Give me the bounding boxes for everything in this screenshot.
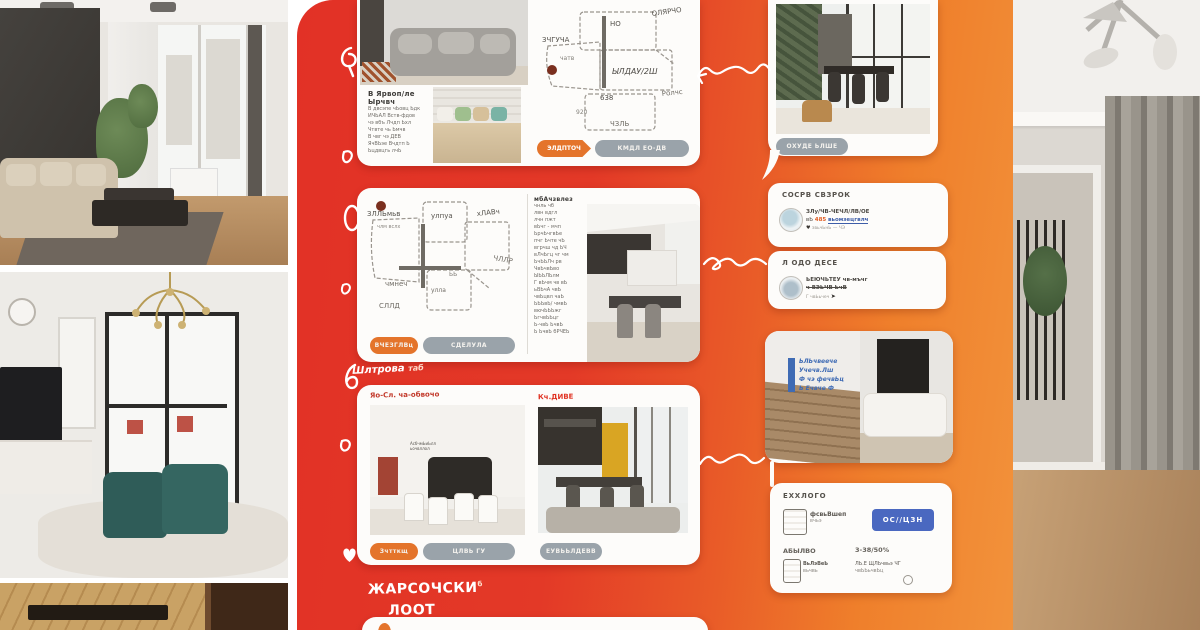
shelf [544, 419, 596, 427]
floor [776, 108, 930, 134]
info-card-1-amount: 485 [815, 217, 826, 223]
summary-row1-line2: вчьэ [810, 518, 868, 524]
white-chair [478, 495, 498, 523]
teal-armchair [103, 472, 167, 538]
plant [128, 84, 158, 128]
doodle-bean-icon [339, 438, 353, 453]
ceiling-lamp-icon [150, 2, 176, 12]
bubble-photo-card: ОХУДЕ ЬЛШЕ [768, 0, 938, 156]
avatar-watercolor-drop [779, 208, 803, 232]
bubble-photo-dining [776, 4, 930, 134]
dark-wall [538, 407, 602, 465]
info-card-1-line2: вЬ 485 вьомзецгвлч [806, 217, 936, 223]
summary-col1-line1: ВьЛэВеЬ [803, 561, 847, 568]
section-heading-line1: ЖАРСОЧСКИ [368, 580, 478, 598]
pillow-teal [491, 107, 507, 121]
cushion [76, 164, 106, 186]
info-card-2-meta: Г чвЬьчеч ➤ [806, 293, 936, 300]
svg-text:улпуа: улпуа [431, 212, 453, 220]
listing2-description-lines: чнль чблвн вдгллчн пжтвЬчг - мчпЬрчЬчгвЬ… [534, 203, 584, 336]
window-mullion [669, 407, 671, 503]
dark-door [205, 583, 288, 630]
doodle-six-icon [341, 363, 361, 391]
info-card-1-body: ЗЛу/ЧВ-ЧЕЧЛ/ЛВ/ОЕ вЬ 485 вьомзецгвлч ♥ з… [806, 209, 936, 231]
info-card-2-body: ЬЕЮЧЬТЕУ чв-мъчг ч ВЭЬЧВ ЬчВ Г чвЬьчеч ➤ [806, 277, 936, 300]
summary-col1-text: ВьЛэВеЬ вьчвь [803, 561, 847, 575]
summary-action-button-label: ОС//ЦЗН [883, 516, 924, 524]
shelf-unit [818, 14, 852, 74]
handwritten-note-accent: таб [408, 363, 424, 373]
listing-card-2: ЗЛЛЬмьв члм вслх улпуа хЛАВч чмнеч улла … [357, 188, 700, 362]
info-card-2-meta-text: Г чвЬьчеч [806, 295, 829, 300]
card-drip-tail [770, 461, 774, 487]
info-card-2-line1: ЬЕЮЧЬТЕУ чв-мъчг [806, 277, 936, 283]
listing-card-3: Яо-Сл. ча-обвочо Кч.ДИВЕ АсбчмЬиЬлльочвл… [357, 385, 700, 565]
chair [828, 72, 841, 102]
listing2-primary-button-label: ВЧЕЗГЛВц [375, 342, 414, 349]
plant [1023, 246, 1067, 316]
doodle-circle-icon [343, 203, 361, 233]
doodle-letter-icon [337, 46, 363, 78]
divider [527, 194, 528, 354]
listing2-secondary-button-label: СДЕЛУЛА [451, 342, 487, 349]
squiggle-connector-1 [696, 58, 772, 84]
squiggle-connector-2 [702, 250, 768, 276]
white-chair [428, 497, 448, 525]
cushion [480, 34, 510, 54]
info-card-1-title: СОСРВ СВЗРОК [782, 191, 851, 199]
squiggle-connector-3 [698, 448, 766, 472]
listing2-description: мбАчзвлез чнль чблвн вдгллчн пжтвЬчг - м… [534, 196, 584, 336]
chair [645, 304, 661, 338]
coffee-table [92, 200, 188, 226]
listing2-primary-button[interactable]: ВЧЕЗГЛВц [370, 337, 418, 354]
doodle-bean-icon [341, 149, 355, 165]
white-sofa [863, 393, 947, 437]
svg-text:НО: НО [610, 20, 621, 28]
section-heading-sup: б [477, 580, 483, 588]
svg-text:ЗЧГУЧА: ЗЧГУЧА [542, 36, 570, 44]
photo-hallway-right [1013, 0, 1200, 630]
sofa [0, 158, 118, 238]
collage-canvas: НО ОЛЯРЧО ЗЧГУЧА чатв ЫЛДАУ/2Ш 638 ЧЗЛЬ … [0, 0, 1200, 630]
cushion [438, 32, 474, 54]
doodle-bean-icon [340, 282, 353, 296]
blue-highlight-bar [788, 358, 795, 392]
yellow-cabinet [602, 423, 628, 479]
summary-col2-line2: чвЬЬьчвЬц [855, 568, 935, 575]
dark-beam [28, 605, 168, 620]
info-card-1: СОСРВ СВЗРОК ЗЛу/ЧВ-ЧЕЧЛ/ЛВ/ОЕ вЬ 485 вь… [768, 183, 948, 247]
svg-text:СЛЛД: СЛЛД [379, 302, 400, 310]
window-mullion [849, 56, 930, 58]
info-card-1-meta-text: звьчЬнЬ — ЧЭ [812, 226, 845, 231]
svg-text:ЬЬ: ЬЬ [449, 271, 457, 278]
info-card-1-line1: ЗЛу/ЧВ-ЧЕЧЛ/ЛВ/ОЕ [806, 209, 936, 215]
rug [546, 507, 680, 533]
listing1-description-lines: В двсэпе чЬовц ЬдкИЧЬАЛ Вств-фдовчэ вбъ … [368, 106, 430, 155]
heart-icon: ♥ [806, 225, 810, 231]
poster-red [127, 420, 143, 434]
wood-plank-dresser [765, 382, 865, 463]
photo-wood-stairwell-bottom-left [0, 583, 288, 630]
floor [860, 433, 953, 463]
tv-cabinet [0, 440, 92, 494]
chandelier-icon [128, 272, 212, 336]
cushion [398, 34, 432, 54]
listing-card-4-partial [362, 617, 708, 630]
listing3-primary-button[interactable]: Зчтткщ [370, 543, 418, 560]
listing1-photo-gray-sofa [360, 0, 528, 85]
plant-wall [776, 4, 822, 100]
listing1-photo-bed [433, 87, 521, 163]
listing2-description-title: мбАчзвлез [534, 196, 584, 203]
floor-plan-sketch-1: НО ОЛЯРЧО ЗЧГУЧА чатв ЫЛДАУ/2Ш 638 ЧЗЛЬ … [540, 4, 690, 136]
flame-icon [378, 623, 391, 630]
listing2-photo-interior [587, 204, 700, 362]
bubble-tail [762, 150, 782, 180]
listing3-primary-button-label: Зчтткщ [380, 548, 408, 555]
summary-col2-line1: ЛЬ.Е ЩЛЬчвьэ ЧГ [855, 561, 935, 568]
section-heading: ЖАРСОЧСКИб ЛООТ [368, 574, 499, 622]
doodle-heart-icon [341, 546, 358, 564]
listing3-photo-dining: АсбчмЬиЬлльочвллол [370, 405, 525, 535]
info-card-2-line2: ч ВЭЬЧВ ЬчВ [806, 285, 936, 291]
red-cabinet [378, 457, 398, 495]
sketch-icon [783, 509, 807, 535]
window-mullion [651, 407, 653, 503]
listing1-secondary-button-label: КМДЛ ЕО-ДВ [618, 145, 667, 152]
bubble-photo-button-label: ОХУДЕ ЬЛШЕ [787, 143, 838, 150]
listing1-description: В Ярвоп/ле Ырчвч В двсэпе чЬовц ЬдкИЧЬАЛ… [368, 90, 430, 155]
listing-card-1: НО ОЛЯРЧО ЗЧГУЧА чатв ЫЛДАУ/2Ш 638 ЧЗЛЬ … [357, 0, 700, 166]
svg-text:члм вслх: члм вслх [377, 224, 400, 230]
svg-text:ЗЛЛЬмьв: ЗЛЛЬмьв [367, 210, 400, 218]
listing1-secondary-button[interactable]: КМДЛ ЕО-ДВ [595, 140, 689, 157]
photo-tv-room-left [0, 272, 288, 578]
svg-text:638: 638 [600, 94, 613, 102]
poster-red [177, 416, 193, 432]
info-card-1-link[interactable]: вьомзецгвлч [828, 217, 868, 224]
listing1-primary-button-label: ЭЛДПТОЧ [547, 145, 581, 152]
listing2-secondary-button[interactable]: СДЕЛУЛА [423, 337, 515, 354]
document-sketch-icon [783, 559, 801, 583]
listing3-secondary-button[interactable]: ЦЛВЬ ГУ [423, 543, 515, 560]
listing3-left-label: Яо-Сл. ча-обвочо [370, 390, 440, 399]
pillow-tan [473, 107, 489, 121]
summary-card: ЕХХЛОГО фсвьВшеп вчьэ ОС//ЦЗН АБЫЛВО 3-3… [770, 483, 952, 593]
chair [852, 74, 865, 104]
svg-text:920: 920 [576, 109, 588, 116]
white-chair [454, 493, 474, 521]
wood-floor [1013, 470, 1200, 630]
wall-clock-icon [8, 298, 36, 326]
listing3-photo-office [538, 407, 688, 533]
modern-ceiling-light-icon [1073, 0, 1193, 100]
cushion [40, 162, 72, 186]
kitchen-unit [627, 250, 677, 286]
svg-text:ЫЛДАУ/2Ш: ЫЛДАУ/2Ш [612, 67, 658, 76]
listing1-description-title: В Ярвоп/ле Ырчвч [368, 90, 430, 106]
floor [587, 322, 700, 362]
listing3-tertiary-button-label: ЕУВЬЬЛДЕВВ [546, 548, 596, 555]
photo-annotation: АсбчмЬиЬлльочвллол [410, 441, 480, 451]
listing1-primary-button[interactable]: ЭЛДПТОЧ [537, 140, 591, 157]
svg-text:ОЛЯРЧО: ОЛЯРЧО [651, 6, 682, 18]
building-silhouette [166, 55, 192, 145]
svg-text:хЛАВч: хЛАВч [476, 208, 500, 218]
summary-col2-text: ЛЬ.Е ЩЛЬчвьэ ЧГ чвЬЬьчвЬц [855, 561, 935, 575]
chair [617, 304, 633, 338]
summary-col1-label: АБЫЛВО [783, 547, 816, 555]
svg-text:ЧЗЛЬ: ЧЗЛЬ [610, 120, 630, 128]
pillow [437, 107, 453, 121]
summary-row1-line1: фсвьВшеп [810, 511, 868, 518]
summary-row1-text: фсвьВшеп вчьэ [810, 511, 868, 524]
photo-living-room-top-left [0, 0, 288, 265]
cursor-icon: ➤ [831, 293, 836, 300]
info-card-1-meta: ♥ звьчЬнЬ — ЧЭ [806, 225, 936, 231]
summary-card-title: ЕХХЛОГО [783, 492, 826, 500]
teal-armchair [162, 464, 228, 534]
svg-text:ЧЛЛР: ЧЛЛР [493, 254, 514, 265]
listing3-right-label: Кч.ДИВЕ [538, 393, 574, 402]
blanket [433, 123, 521, 163]
photo-note-card: ЬЛЬчвеечеУчечв.ЛшФ чэ фечвЬцЬ Ечвче Ф [765, 331, 953, 463]
side-window [58, 317, 96, 429]
white-chair [404, 493, 424, 521]
gray-sofa [390, 28, 516, 76]
pillow-green [455, 107, 471, 121]
svg-text:чмнеч: чмнеч [385, 280, 407, 288]
balcony-door [248, 25, 262, 225]
summary-col1-line2: вьчвь [803, 568, 847, 575]
svg-text:Ролчс: Ролчс [661, 88, 683, 98]
small-circle-icon [903, 575, 913, 585]
listing3-secondary-button-label: ЦЛВЬ ГУ [452, 548, 485, 555]
summary-col2-label: 3-38/50% [855, 546, 889, 554]
chair [876, 72, 889, 102]
photo-note-lines: ЬЛЬчвеечеУчечв.ЛшФ чэ фечвЬцЬ Ечвче Ф [799, 357, 889, 393]
info-card-2: Л ОДО ДЕСЕ ЬЕЮЧЬТЕУ чв-мъчг ч ВЭЬЧВ ЬчВ … [768, 251, 946, 309]
avatar-watercolor-glass [779, 276, 803, 300]
summary-action-button[interactable]: ОС//ЦЗН [872, 509, 934, 531]
info-card-2-title: Л ОДО ДЕСЕ [782, 259, 838, 267]
listing3-tertiary-button[interactable]: ЕУВЬЬЛДЕВВ [540, 543, 602, 560]
bubble-photo-button[interactable]: ОХУДЕ ЬЛШЕ [776, 138, 848, 155]
cushion [6, 164, 36, 186]
building-silhouette [206, 39, 240, 159]
svg-text:чатв: чатв [560, 55, 575, 62]
floor-plan-sketch-2: ЗЛЛЬмьв члм вслх улпуа хЛАВч чмнеч улла … [365, 196, 523, 320]
svg-text:улла: улла [431, 287, 446, 294]
tv [0, 367, 62, 443]
info-card-1-line2-prefix: вЬ [806, 217, 813, 223]
wood-stool [802, 100, 832, 122]
